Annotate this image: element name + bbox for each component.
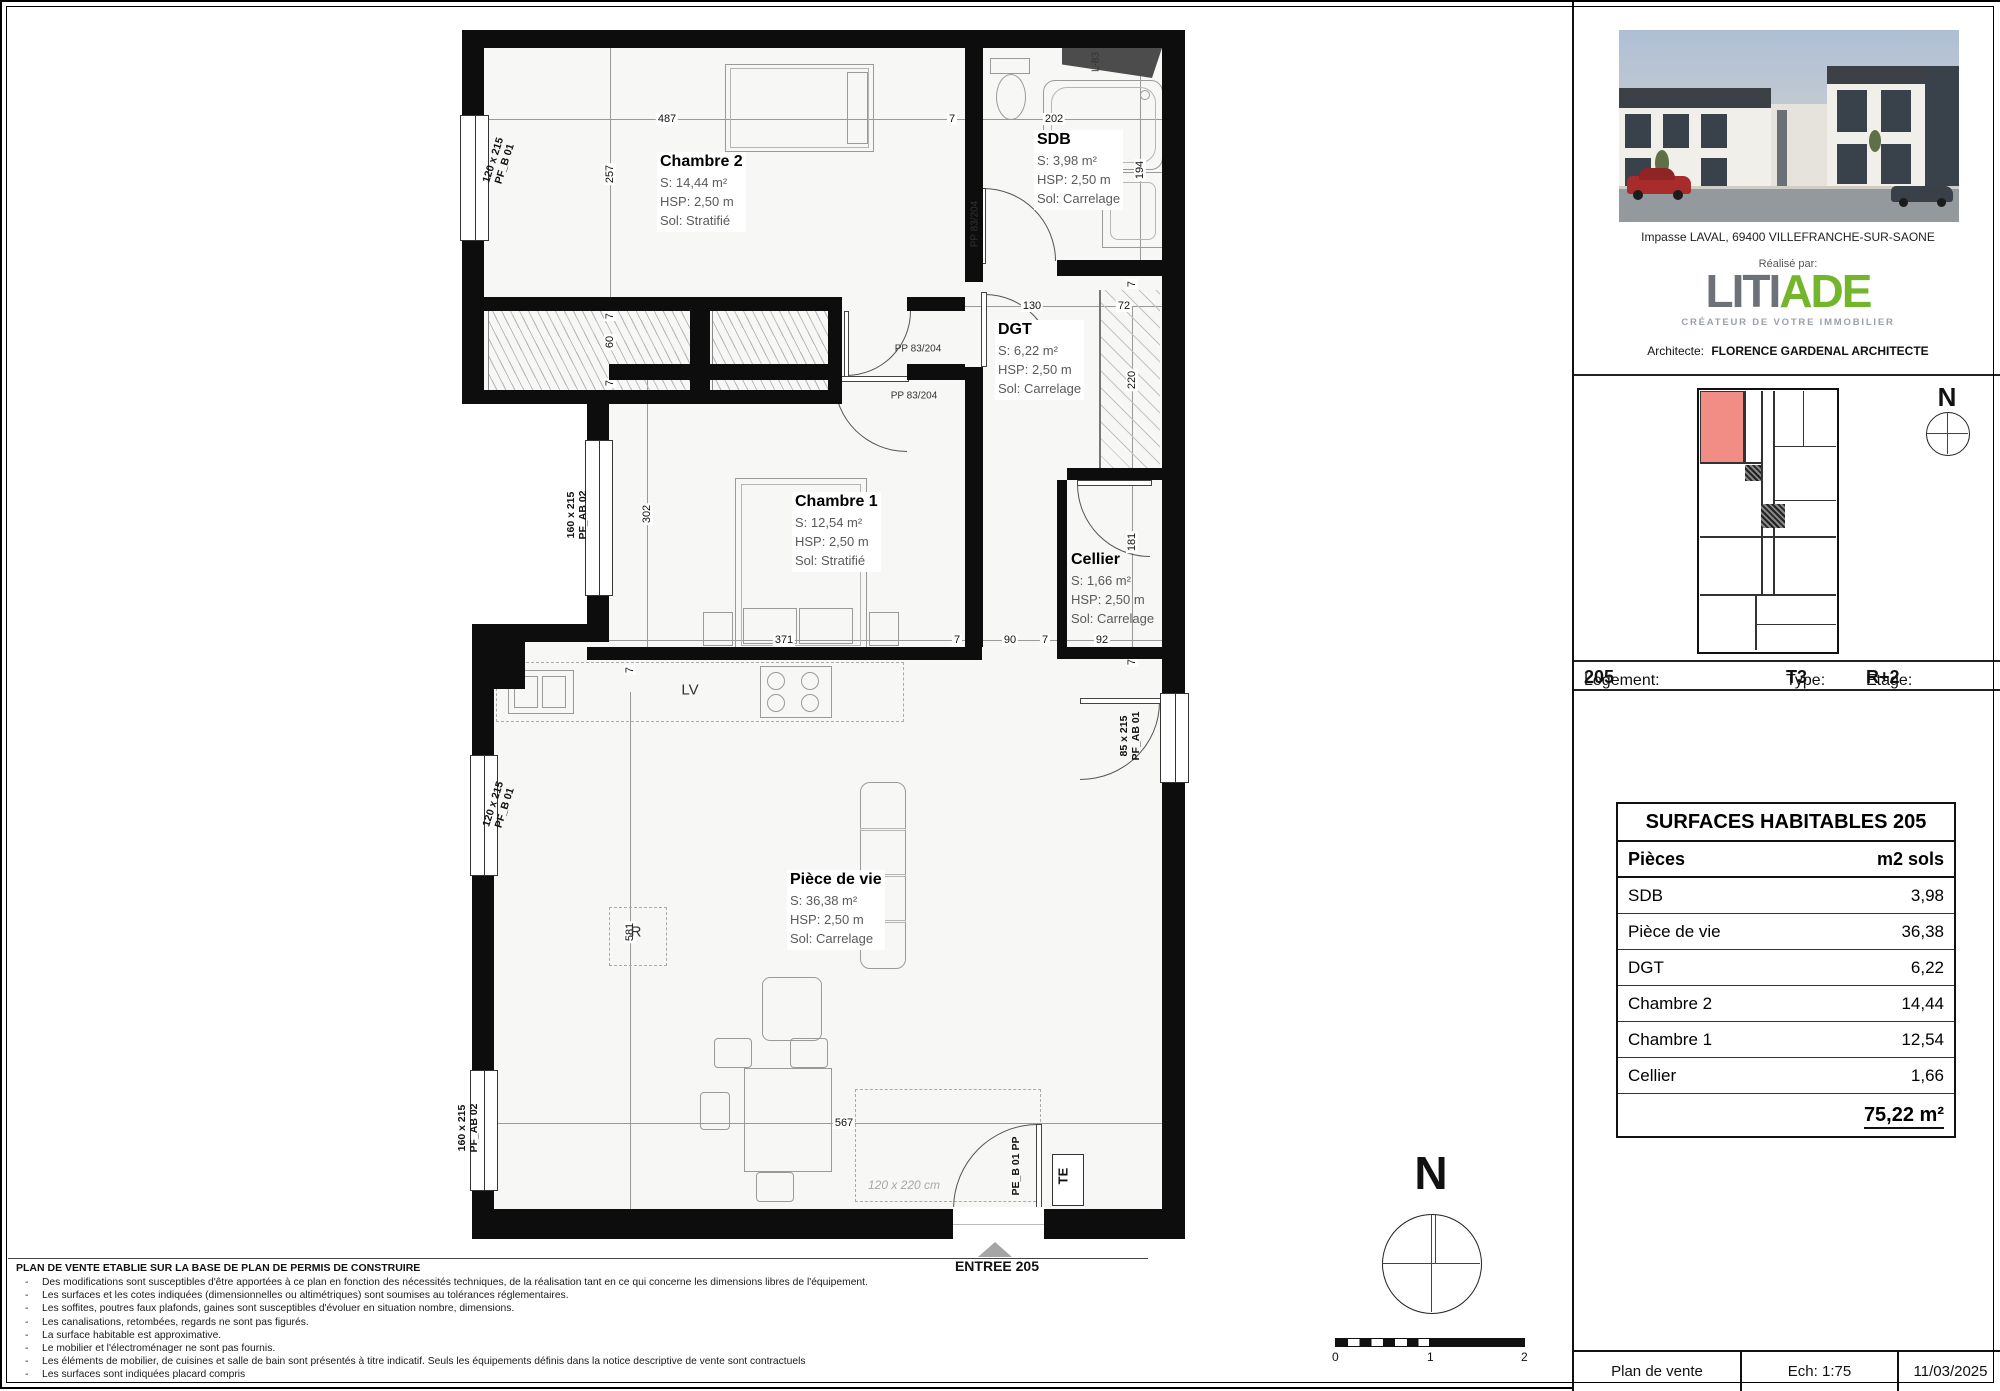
unit-info-strip: Logement: 205 Type:T3 Etage: R+2 <box>1574 660 2000 691</box>
wall-segment <box>472 689 494 757</box>
wall-segment <box>462 237 484 404</box>
wall-segment <box>587 390 609 442</box>
room-hsp: HSP: 2,50 m <box>660 193 743 212</box>
plan-label: TE <box>1057 1168 1072 1185</box>
wc-tank <box>990 58 1030 74</box>
wc-bowl <box>996 74 1026 120</box>
scale-label: 2 <box>1521 1350 1528 1364</box>
surface-cell: 6,22 <box>1911 950 1944 985</box>
car-wheel-icon <box>1673 190 1683 200</box>
dimension-label: 7 <box>947 113 957 125</box>
plan-de-vente-page: Chambre 2 S: 14,44 m² HSP: 2,50 m Sol: S… <box>0 0 2000 1389</box>
burner <box>801 672 819 690</box>
room-cell: Chambre 1 <box>1628 1022 1712 1057</box>
keyplan-stairs <box>1745 465 1761 481</box>
col-pieces: Pièces <box>1628 842 1685 876</box>
north-arrow-icon: N <box>1922 382 1972 413</box>
note-item: -La surface habitable est approximative. <box>16 1329 1096 1342</box>
keyplan-wall <box>1803 391 1804 446</box>
room-cell: SDB <box>1628 878 1663 913</box>
room-label-chambre1: Chambre 1 S: 12,54 m² HSP: 2,50 m Sol: S… <box>792 492 881 572</box>
dimension-label: 194 <box>1134 159 1146 181</box>
wall-segment <box>1042 1209 1185 1239</box>
closet-partition <box>1099 290 1101 472</box>
room-name: Pièce de vie <box>790 871 882 889</box>
wall-segment <box>1057 480 1067 659</box>
dimension-label: 202 <box>1043 113 1065 125</box>
door-label: PP 83/204 <box>969 201 981 248</box>
table-row: SDB3,98 <box>1618 878 1954 914</box>
room-sol: Sol: Carrelage <box>1071 610 1154 629</box>
nightstand <box>869 612 899 646</box>
room-surface: S: 12,54 m² <box>795 514 878 533</box>
room-sol: Sol: Stratifié <box>660 212 743 231</box>
wall-segment <box>462 390 842 404</box>
chair <box>700 1092 730 1130</box>
compass-circle <box>1382 1214 1482 1314</box>
dimension-label: 257 <box>604 163 616 185</box>
dimension-label: 7 <box>624 665 636 675</box>
room-sol: Sol: Carrelage <box>1037 190 1120 209</box>
architect-name: FLORENCE GARDENAL ARCHITECTE <box>1711 344 1928 358</box>
dimension-label: 130 <box>1021 300 1043 312</box>
surface-cell: 14,44 <box>1901 986 1944 1021</box>
building-panel <box>1925 66 1959 192</box>
chair <box>756 1172 794 1202</box>
dimension-label: 60 <box>604 334 616 350</box>
wall-segment <box>907 364 965 380</box>
door-label: L-83 <box>1090 52 1102 72</box>
project-address: Impasse LAVAL, 69400 VILLEFRANCHE-SUR-SA… <box>1574 230 2000 244</box>
project-photo <box>1619 30 1959 222</box>
scale-bar: 0 1 2 <box>1335 1338 1525 1364</box>
legal-notes: PLAN DE VENTE ETABLIE SUR LA BASE DE PLA… <box>16 1262 1096 1382</box>
room-label-dgt: DGT S: 6,22 m² HSP: 2,50 m Sol: Carrelag… <box>995 320 1084 400</box>
surface-cell: 36,38 <box>1901 914 1944 949</box>
logo-part-gray: LITI <box>1706 265 1780 317</box>
building-window <box>1881 90 1911 132</box>
dimension-label: 7 <box>604 311 616 321</box>
compass-line <box>1947 412 1948 454</box>
surfaces-total: 75,22 m² <box>1618 1094 1954 1136</box>
building-window <box>1881 144 1911 184</box>
room-label-chambre2: Chambre 2 S: 14,44 m² HSP: 2,50 m Sol: S… <box>657 152 746 232</box>
wall-segment <box>587 592 609 624</box>
surface-cell: 1,66 <box>1911 1058 1944 1093</box>
keyplan-wall <box>1775 446 1836 447</box>
dimension-label: 7 <box>1040 634 1050 646</box>
note-item: -Des modifications sont susceptibles d'ê… <box>16 1276 1096 1289</box>
dimension-label: 220 <box>1126 369 1138 391</box>
dimension-label: 487 <box>656 113 678 125</box>
door-leaf <box>1077 480 1152 486</box>
plan-label: R <box>631 923 642 940</box>
north-arrow-icon: N <box>1394 1146 1468 1200</box>
wall-segment <box>472 624 525 689</box>
etage-field: Etage: R+2 <box>1866 667 1900 688</box>
room-name: DGT <box>998 321 1081 339</box>
dimension-label: 7 <box>1126 279 1138 289</box>
keyplan-wall <box>1757 624 1836 625</box>
red-car-cabin <box>1639 168 1675 180</box>
keyplan-wall <box>1761 391 1763 596</box>
doc-date: 11/03/2025 <box>1897 1352 2000 1391</box>
compass-line <box>1435 1214 1436 1264</box>
greenery <box>1869 130 1881 152</box>
armchair <box>762 977 822 1041</box>
door-leaf <box>834 376 909 382</box>
logement-field: Logement: 205 <box>1584 667 1614 688</box>
room-label-cellier: Cellier S: 1,66 m² HSP: 2,50 m Sol: Carr… <box>1068 550 1157 630</box>
dimension-label: 371 <box>773 634 795 646</box>
table-row: Pièce de vie36,38 <box>1618 914 1954 950</box>
keyplan-wall <box>1700 594 1836 596</box>
building-window <box>1701 114 1727 148</box>
entrance-opening <box>953 1207 1044 1241</box>
room-surface: S: 1,66 m² <box>1071 572 1154 591</box>
table-row: DGT6,22 <box>1618 950 1954 986</box>
scale-label: 0 <box>1332 1350 1339 1364</box>
room-name: Cellier <box>1071 551 1154 569</box>
sink-bowl <box>542 676 566 708</box>
wall-segment <box>907 297 965 311</box>
key-plan <box>1697 388 1839 654</box>
room-label-piece-de-vie: Pièce de vie S: 36,38 m² HSP: 2,50 m Sol… <box>787 870 885 950</box>
dimension-label: 92 <box>1094 634 1110 646</box>
litiade-logo: LITIADE <box>1574 268 2000 314</box>
room-hsp: HSP: 2,50 m <box>790 911 882 930</box>
room-hsp: HSP: 2,50 m <box>795 533 878 552</box>
wall-segment <box>472 1209 955 1239</box>
type-field: Type:T3 <box>1786 667 1807 688</box>
dimension-label: 90 <box>1002 634 1018 646</box>
window-pfab02-chambre1 <box>585 440 613 596</box>
burner <box>767 694 785 712</box>
room-cell: DGT <box>1628 950 1664 985</box>
keyplan-highlight-unit-205 <box>1700 391 1744 463</box>
room-hsp: HSP: 2,50 m <box>1037 171 1120 190</box>
note-item: -Les éléments de mobilier, de cuisines e… <box>16 1355 1096 1368</box>
keyplan-wall <box>1773 391 1775 596</box>
keyplan-wall <box>1775 500 1836 501</box>
room-name: SDB <box>1037 131 1120 149</box>
sofa-seam <box>860 828 906 831</box>
car-wheel-icon <box>1899 198 1908 207</box>
building-roof <box>1619 88 1771 108</box>
wall-segment <box>587 647 982 660</box>
wall-segment <box>1057 260 1162 276</box>
pillow <box>799 608 853 644</box>
car-wheel-icon <box>1937 198 1946 207</box>
room-sol: Sol: Carrelage <box>998 380 1081 399</box>
room-hsp: HSP: 2,50 m <box>998 361 1081 380</box>
wall-segment <box>472 1187 494 1217</box>
wall-segment <box>1162 779 1185 1209</box>
nightstand <box>703 612 733 646</box>
surface-cell: 12,54 <box>1901 1022 1944 1057</box>
col-m2: m2 sols <box>1877 842 1944 876</box>
room-cell: Chambre 2 <box>1628 986 1712 1021</box>
dimension-label: 302 <box>641 503 653 525</box>
wall-segment <box>462 297 842 311</box>
window-label: 85 x 215 PF_AB 01 <box>1118 711 1142 760</box>
table-row: Cellier1,66 <box>1618 1058 1954 1094</box>
building-window <box>1837 144 1867 184</box>
table-row: Chambre 214,44 <box>1618 986 1954 1022</box>
plan-label: LV <box>681 681 698 698</box>
pillow <box>847 72 868 144</box>
note-item: -Les canalisations, retombées, regards n… <box>16 1316 1096 1329</box>
notes-list: -Des modifications sont susceptibles d'ê… <box>16 1276 1096 1382</box>
wall-segment <box>462 48 484 117</box>
dimension-label: 72 <box>1116 300 1132 312</box>
window-label: 160 x 215 PF_AB 02 <box>456 1103 480 1152</box>
surface-cell: 3,98 <box>1911 878 1944 913</box>
car-wheel-icon <box>1633 190 1643 200</box>
compass-line <box>1431 1214 1432 1312</box>
entrance-door-leaf <box>1036 1124 1042 1211</box>
scale-bar-checker <box>1335 1338 1430 1347</box>
dining-table <box>744 1068 832 1172</box>
window-label: PE_B 01 PP <box>1010 1137 1022 1196</box>
window-label: 160 x 215 PF_AB 02 <box>565 490 589 539</box>
notes-title: PLAN DE VENTE ETABLIE SUR LA BASE DE PLA… <box>16 1262 1096 1274</box>
title-block-footer: Plan de vente Ech: 1:75 11/03/2025 <box>1574 1350 2000 1391</box>
bathtub-drain <box>1140 90 1150 100</box>
scale-label: 1 <box>1427 1350 1434 1364</box>
room-hsp: HSP: 2,50 m <box>1071 591 1154 610</box>
room-cell: Cellier <box>1628 1058 1676 1093</box>
room-surface: S: 3,98 m² <box>1037 152 1120 171</box>
keyplan-wall <box>1700 462 1762 464</box>
wall-segment <box>472 872 494 1072</box>
door-leaf <box>1080 698 1162 704</box>
chair <box>790 1038 828 1068</box>
room-surface: S: 36,38 m² <box>790 892 882 911</box>
door-leaf <box>844 311 849 381</box>
wall-segment <box>462 30 1185 48</box>
room-cell: Pièce de vie <box>1628 914 1721 949</box>
building-window <box>1837 90 1867 132</box>
wall-segment <box>965 367 983 647</box>
scale-value: Ech: 1:75 <box>1740 1352 1897 1391</box>
building-window <box>1663 114 1689 148</box>
wall-segment <box>1057 647 1185 659</box>
keyplan-wall <box>1700 536 1836 538</box>
room-surface: S: 14,44 m² <box>660 174 743 193</box>
surfaces-table-title: SURFACES HABITABLES 205 <box>1618 804 1954 842</box>
room-sol: Sol: Stratifié <box>795 552 878 571</box>
building-window <box>1625 114 1651 148</box>
logo-part-green: ADE <box>1779 265 1870 317</box>
window-pfab01 <box>1160 693 1189 783</box>
burner <box>801 694 819 712</box>
scale-bar-solid <box>1430 1338 1525 1347</box>
wall-segment <box>1162 48 1185 695</box>
door-label: PP 83/204 <box>895 343 942 355</box>
room-surface: S: 6,22 m² <box>998 342 1081 361</box>
dimension-label: 7 <box>952 634 962 646</box>
dimension-label: 567 <box>833 1117 855 1129</box>
keyplan-wall <box>1755 596 1757 650</box>
note-item: -Le mobilier et l'électroménager ne sont… <box>16 1342 1096 1355</box>
building-window <box>1701 158 1727 188</box>
chair <box>714 1038 752 1068</box>
note-item: -Les surfaces sont indiquées placard com… <box>16 1368 1096 1381</box>
keyplan-wall <box>1744 391 1746 463</box>
keyplan-elevator <box>1761 504 1785 528</box>
door-leaf <box>981 292 987 367</box>
sidebar-divider <box>1574 374 2000 376</box>
title-block-sidebar: Impasse LAVAL, 69400 VILLEFRANCHE-SUR-SA… <box>1572 2 2000 1391</box>
room-name: Chambre 1 <box>795 493 878 511</box>
room-sol: Sol: Carrelage <box>790 930 882 949</box>
wall-segment <box>1067 468 1162 480</box>
entrance-arrow-icon <box>978 1242 1012 1257</box>
wall-segment <box>609 364 832 380</box>
plan-label: 120 x 220 cm <box>868 1179 940 1193</box>
surfaces-table: SURFACES HABITABLES 205 Pièces m2 sols S… <box>1616 802 1956 1138</box>
note-item: -Les soffites, poutres faux plafonds, ga… <box>16 1302 1096 1315</box>
logo-tagline: CRÉATEUR DE VOTRE IMMOBILIER <box>1574 317 2000 328</box>
room-name: Chambre 2 <box>660 153 743 171</box>
note-item: -Les surfaces et les cotes indiquées (di… <box>16 1289 1096 1302</box>
door-label: PP 83/204 <box>891 390 938 402</box>
doc-type: Plan de vente <box>1574 1352 1740 1391</box>
architect-label: Architecte: <box>1647 344 1704 358</box>
surfaces-table-body: SDB3,98Pièce de vie36,38DGT6,22Chambre 2… <box>1618 878 1954 1094</box>
room-label-sdb: SDB S: 3,98 m² HSP: 2,50 m Sol: Carrelag… <box>1034 130 1123 210</box>
surfaces-table-header: Pièces m2 sols <box>1618 842 1954 878</box>
architect-line: Architecte: FLORENCE GARDENAL ARCHITECTE <box>1574 344 2000 358</box>
compass-circle <box>1926 412 1970 456</box>
burner <box>767 672 785 690</box>
building-window <box>1777 110 1787 186</box>
table-row: Chambre 112,54 <box>1618 1022 1954 1058</box>
